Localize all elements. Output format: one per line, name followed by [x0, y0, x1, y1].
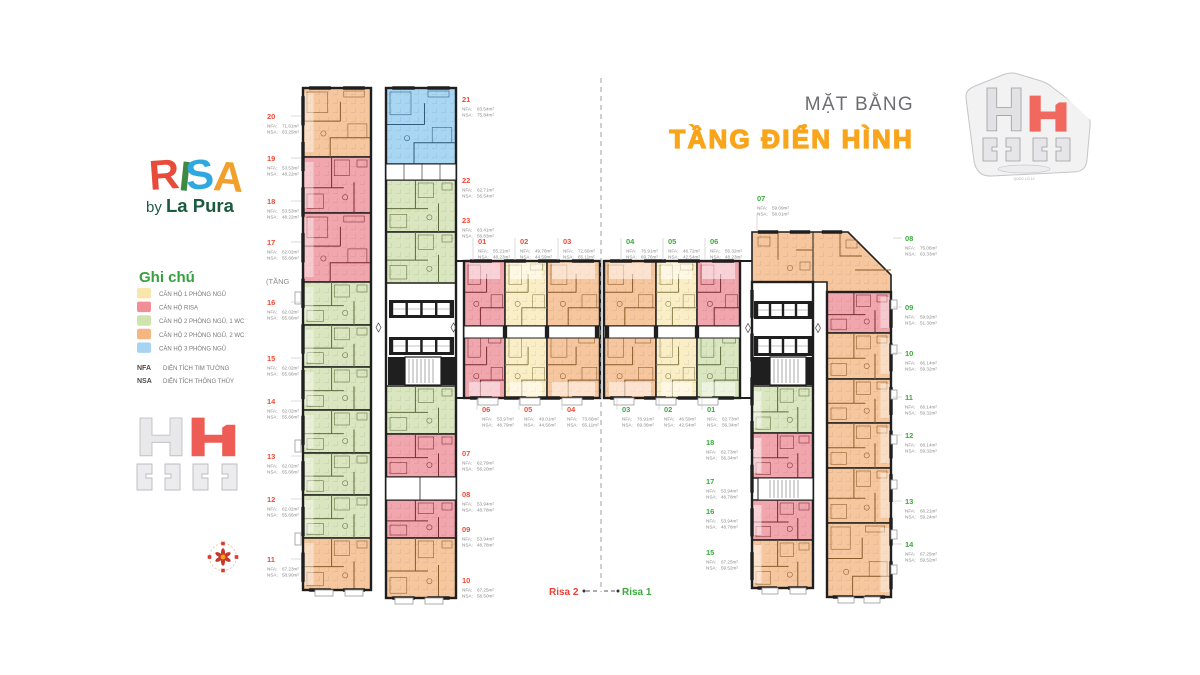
svg-text:NFA:53.94m²: NFA:53.94m²	[706, 489, 738, 494]
svg-text:CĂN HỘ RISA: CĂN HỘ RISA	[159, 305, 198, 312]
svg-text:NSA:55.66m²: NSA:55.66m²	[267, 256, 299, 261]
svg-text:NFA:76.91m²: NFA:76.91m²	[626, 249, 658, 254]
svg-text:NFA: NFA	[137, 365, 151, 372]
svg-text:09: 09	[462, 525, 470, 534]
svg-text:NFA:55.32m²: NFA:55.32m²	[710, 249, 742, 254]
svg-text:18: 18	[706, 438, 714, 447]
svg-text:Risa 2: Risa 2	[549, 587, 579, 598]
svg-text:NSA:59.32m²: NSA:59.32m²	[905, 411, 937, 416]
svg-text:NFA:62.02m²: NFA:62.02m²	[267, 464, 299, 469]
svg-text:06: 06	[710, 237, 718, 246]
svg-text:NFA:53.53m²: NFA:53.53m²	[267, 209, 299, 214]
svg-text:NSA:48.78m²: NSA:48.78m²	[706, 495, 738, 500]
svg-text:NSA:55.66m²: NSA:55.66m²	[267, 470, 299, 475]
svg-text:NSA:56.54m²: NSA:56.54m²	[462, 194, 494, 199]
svg-text:DIỆN TÍCH THÔNG THỦY: DIỆN TÍCH THÔNG THỦY	[163, 377, 234, 385]
svg-text:10: 10	[905, 349, 913, 358]
svg-text:NSA:48.79m²: NSA:48.79m²	[482, 423, 514, 428]
svg-text:NSA:59.52m²: NSA:59.52m²	[706, 566, 738, 571]
svg-text:18: 18	[267, 197, 275, 206]
svg-text:NFA:53.94m²: NFA:53.94m²	[706, 519, 738, 524]
svg-text:NSA:48.78m²: NSA:48.78m²	[462, 508, 494, 513]
svg-text:04: 04	[567, 405, 576, 414]
svg-text:NFA:67.25m²: NFA:67.25m²	[706, 560, 738, 565]
svg-text:07: 07	[757, 194, 765, 203]
svg-text:RISA: RISA	[147, 150, 245, 201]
svg-text:NSA:55.66m²: NSA:55.66m²	[267, 316, 299, 321]
svg-text:NSA:63.25m²: NSA:63.25m²	[267, 130, 299, 135]
svg-text:NFA:67.25m²: NFA:67.25m²	[905, 552, 937, 557]
svg-text:by: by	[146, 199, 162, 216]
svg-text:NFA:55.21m²: NFA:55.21m²	[478, 249, 510, 254]
svg-text:NFA:75.06m²: NFA:75.06m²	[905, 246, 937, 251]
svg-text:16: 16	[267, 298, 275, 307]
svg-text:NFA:59.09m²: NFA:59.09m²	[757, 206, 789, 211]
svg-text:NFA:62.02m²: NFA:62.02m²	[267, 250, 299, 255]
svg-text:NSA:58.01m²: NSA:58.01m²	[757, 212, 789, 217]
svg-text:NSA:69.76m²: NSA:69.76m²	[626, 255, 658, 260]
svg-text:13: 13	[905, 497, 913, 506]
svg-text:07: 07	[462, 449, 470, 458]
svg-text:NFA:53.97m²: NFA:53.97m²	[482, 417, 514, 422]
svg-text:Risa 1: Risa 1	[622, 587, 652, 598]
svg-text:NSA:58.90m²: NSA:58.90m²	[267, 573, 299, 578]
svg-text:NSA:48.23m²: NSA:48.23m²	[478, 255, 510, 260]
svg-text:10: 10	[462, 576, 470, 585]
svg-text:NSA:65.11m²: NSA:65.11m²	[567, 423, 599, 428]
svg-text:CĂN HỘ 2 PHÒNG NGỦ, 1 WC: CĂN HỘ 2 PHÒNG NGỦ, 1 WC	[159, 318, 245, 325]
svg-text:23: 23	[462, 216, 470, 225]
svg-text:NFA:68.14m²: NFA:68.14m²	[905, 443, 937, 448]
svg-text:19: 19	[267, 154, 275, 163]
svg-text:NFA:66.14m²: NFA:66.14m²	[905, 361, 937, 366]
svg-text:NSA:55.66m²: NSA:55.66m²	[267, 415, 299, 420]
svg-text:(TẦNG: (TẦNG	[266, 276, 289, 286]
svg-text:05: 05	[668, 237, 676, 246]
svg-text:12: 12	[267, 495, 275, 504]
svg-text:08: 08	[462, 490, 470, 499]
svg-text:NSA:48.23m²: NSA:48.23m²	[710, 255, 742, 260]
svg-text:11: 11	[905, 393, 913, 402]
svg-text:03: 03	[622, 405, 630, 414]
svg-text:21: 21	[462, 95, 470, 104]
svg-text:MẶT BẰNG: MẶT BẰNG	[805, 93, 914, 115]
svg-text:NFA:59.92m²: NFA:59.92m²	[905, 315, 937, 320]
svg-text:NSA:63.33m²: NSA:63.33m²	[905, 252, 937, 257]
svg-text:NFA:62.73m²: NFA:62.73m²	[707, 417, 739, 422]
svg-text:NSA:48.78m²: NSA:48.78m²	[706, 525, 738, 530]
svg-text:14: 14	[905, 540, 914, 549]
svg-text:NSA:55.66m²: NSA:55.66m²	[267, 372, 299, 377]
svg-text:NFA:46.72m²: NFA:46.72m²	[668, 249, 700, 254]
svg-text:01: 01	[478, 237, 486, 246]
svg-text:NSA:44.56m²: NSA:44.56m²	[524, 423, 556, 428]
svg-text:20: 20	[267, 112, 275, 121]
svg-text:NFA:63.41m²: NFA:63.41m²	[462, 228, 494, 233]
svg-text:NFA:76.91m²: NFA:76.91m²	[622, 417, 654, 422]
svg-text:NFA:71.61m²: NFA:71.61m²	[267, 124, 299, 129]
svg-text:NFA:73.66m²: NFA:73.66m²	[567, 417, 599, 422]
svg-text:NFA:67.25m²: NFA:67.25m²	[462, 588, 494, 593]
svg-text:NFA:53.94m²: NFA:53.94m²	[462, 502, 494, 507]
svg-text:NFA:49.76m²: NFA:49.76m²	[520, 249, 552, 254]
svg-text:06: 06	[482, 405, 490, 414]
svg-text:NSA:48.22m²: NSA:48.22m²	[267, 215, 299, 220]
svg-text:NSA:59.24m²: NSA:59.24m²	[905, 515, 937, 520]
svg-text:15: 15	[267, 354, 275, 363]
svg-text:13: 13	[267, 452, 275, 461]
svg-text:01: 01	[707, 405, 715, 414]
svg-text:05: 05	[524, 405, 532, 414]
svg-text:NSA:59.32m²: NSA:59.32m²	[905, 449, 937, 454]
svg-text:NFA:62.71m²: NFA:62.71m²	[462, 188, 494, 193]
svg-text:NSA:44.59m²: NSA:44.59m²	[520, 255, 552, 260]
svg-text:NFA:66.14m²: NFA:66.14m²	[905, 405, 937, 410]
svg-text:17: 17	[267, 238, 275, 247]
svg-text:NSA:48.78m²: NSA:48.78m²	[462, 543, 494, 548]
svg-text:NFA:46.59m²: NFA:46.59m²	[664, 417, 696, 422]
svg-text:12: 12	[905, 431, 913, 440]
svg-text:NFA:67.23m²: NFA:67.23m²	[267, 567, 299, 572]
svg-text:17: 17	[706, 477, 714, 486]
svg-text:NFA:53.94m²: NFA:53.94m²	[462, 537, 494, 542]
svg-text:NFA:72.66m²: NFA:72.66m²	[563, 249, 595, 254]
svg-text:TẦNG ĐIỂN HÌNH: TẦNG ĐIỂN HÌNH	[669, 124, 914, 154]
svg-text:22: 22	[462, 176, 470, 185]
svg-text:02: 02	[520, 237, 528, 246]
svg-text:QUỐC LỘ 13: QUỐC LỘ 13	[1013, 176, 1034, 181]
svg-text:NSA:56.20m²: NSA:56.20m²	[462, 467, 494, 472]
svg-text:La Pura: La Pura	[166, 195, 235, 216]
svg-text:NSA:51.30m²: NSA:51.30m²	[905, 321, 937, 326]
svg-text:NSA:75.84m²: NSA:75.84m²	[462, 113, 494, 118]
svg-text:NSA:58.50m²: NSA:58.50m²	[462, 594, 494, 599]
svg-text:CĂN HỘ 3 PHÒNG NGỦ: CĂN HỘ 3 PHÒNG NGỦ	[159, 345, 226, 352]
svg-text:DIỆN TÍCH TIM TƯỜNG: DIỆN TÍCH TIM TƯỜNG	[163, 364, 230, 372]
svg-text:16: 16	[706, 507, 714, 516]
svg-text:NSA:59.32m²: NSA:59.32m²	[905, 367, 937, 372]
svg-text:NFA:62.79m²: NFA:62.79m²	[462, 461, 494, 466]
svg-text:NSA:65.11m²: NSA:65.11m²	[563, 255, 595, 260]
svg-text:CĂN HỘ 2 PHÒNG NGỦ, 2 WC: CĂN HỘ 2 PHÒNG NGỦ, 2 WC	[159, 332, 245, 339]
svg-text:NSA:42.54m²: NSA:42.54m²	[668, 255, 700, 260]
svg-text:NSA:59.52m²: NSA:59.52m²	[905, 558, 937, 563]
svg-text:NFA:62.73m²: NFA:62.73m²	[706, 450, 738, 455]
svg-text:NSA:56.34m²: NSA:56.34m²	[707, 423, 739, 428]
svg-text:NFA:83.54m²: NFA:83.54m²	[462, 107, 494, 112]
svg-text:NSA:56.34m²: NSA:56.34m²	[706, 456, 738, 461]
svg-text:NFA:62.02m²: NFA:62.02m²	[267, 310, 299, 315]
svg-text:03: 03	[563, 237, 571, 246]
svg-text:NSA:55.66m²: NSA:55.66m²	[267, 513, 299, 518]
svg-text:NSA: NSA	[137, 378, 152, 385]
svg-text:08: 08	[905, 234, 913, 243]
svg-text:Ghi chú: Ghi chú	[139, 269, 195, 286]
svg-text:04: 04	[626, 237, 635, 246]
svg-text:NFA:62.02m²: NFA:62.02m²	[267, 507, 299, 512]
svg-text:CĂN HỘ 1 PHÒNG NGỦ: CĂN HỘ 1 PHÒNG NGỦ	[159, 291, 226, 298]
svg-text:02: 02	[664, 405, 672, 414]
svg-text:09: 09	[905, 303, 913, 312]
svg-text:NSA:42.54m²: NSA:42.54m²	[664, 423, 696, 428]
svg-text:NFA:49.01m²: NFA:49.01m²	[524, 417, 556, 422]
svg-text:15: 15	[706, 548, 714, 557]
svg-text:11: 11	[267, 555, 275, 564]
svg-text:NSA:48.22m²: NSA:48.22m²	[267, 172, 299, 177]
svg-text:NFA:62.02m²: NFA:62.02m²	[267, 409, 299, 414]
svg-text:14: 14	[267, 397, 276, 406]
svg-text:NFA:62.02m²: NFA:62.02m²	[267, 366, 299, 371]
svg-text:NFA:68.21m²: NFA:68.21m²	[905, 509, 937, 514]
svg-text:NFA:53.53m²: NFA:53.53m²	[267, 166, 299, 171]
svg-text:NSA:69.36m²: NSA:69.36m²	[622, 423, 654, 428]
